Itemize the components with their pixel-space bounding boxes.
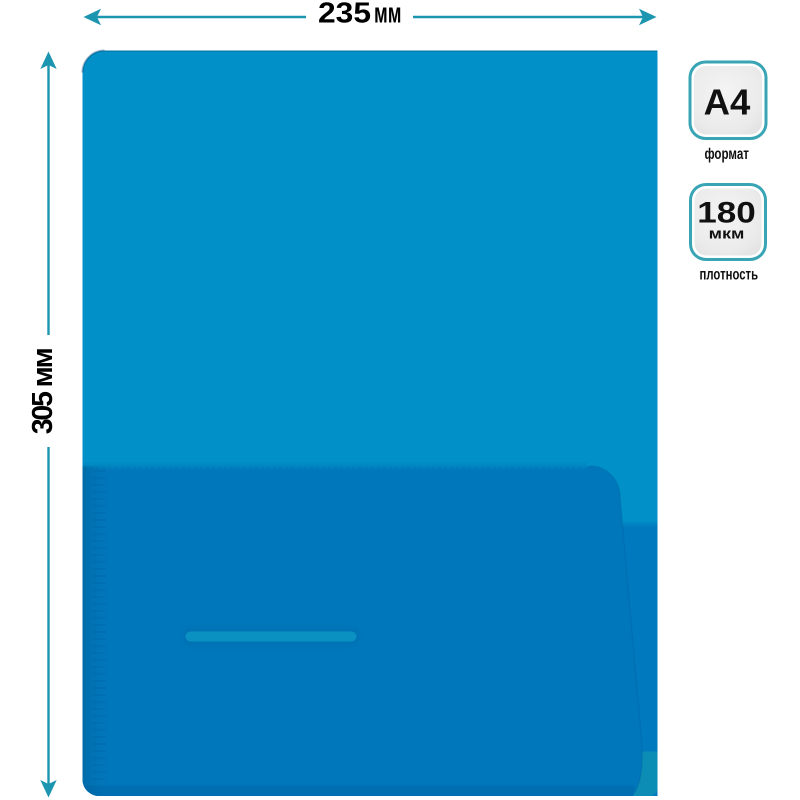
svg-text:235мм: 235мм <box>318 0 402 29</box>
svg-text:180: 180 <box>697 197 756 230</box>
svg-text:плотность: плотность <box>700 267 759 284</box>
svg-text:мкм: мкм <box>709 227 745 243</box>
svg-text:формат: формат <box>704 146 749 163</box>
svg-text:A4: A4 <box>704 82 751 123</box>
svg-text:305 мм: 305 мм <box>27 347 59 434</box>
